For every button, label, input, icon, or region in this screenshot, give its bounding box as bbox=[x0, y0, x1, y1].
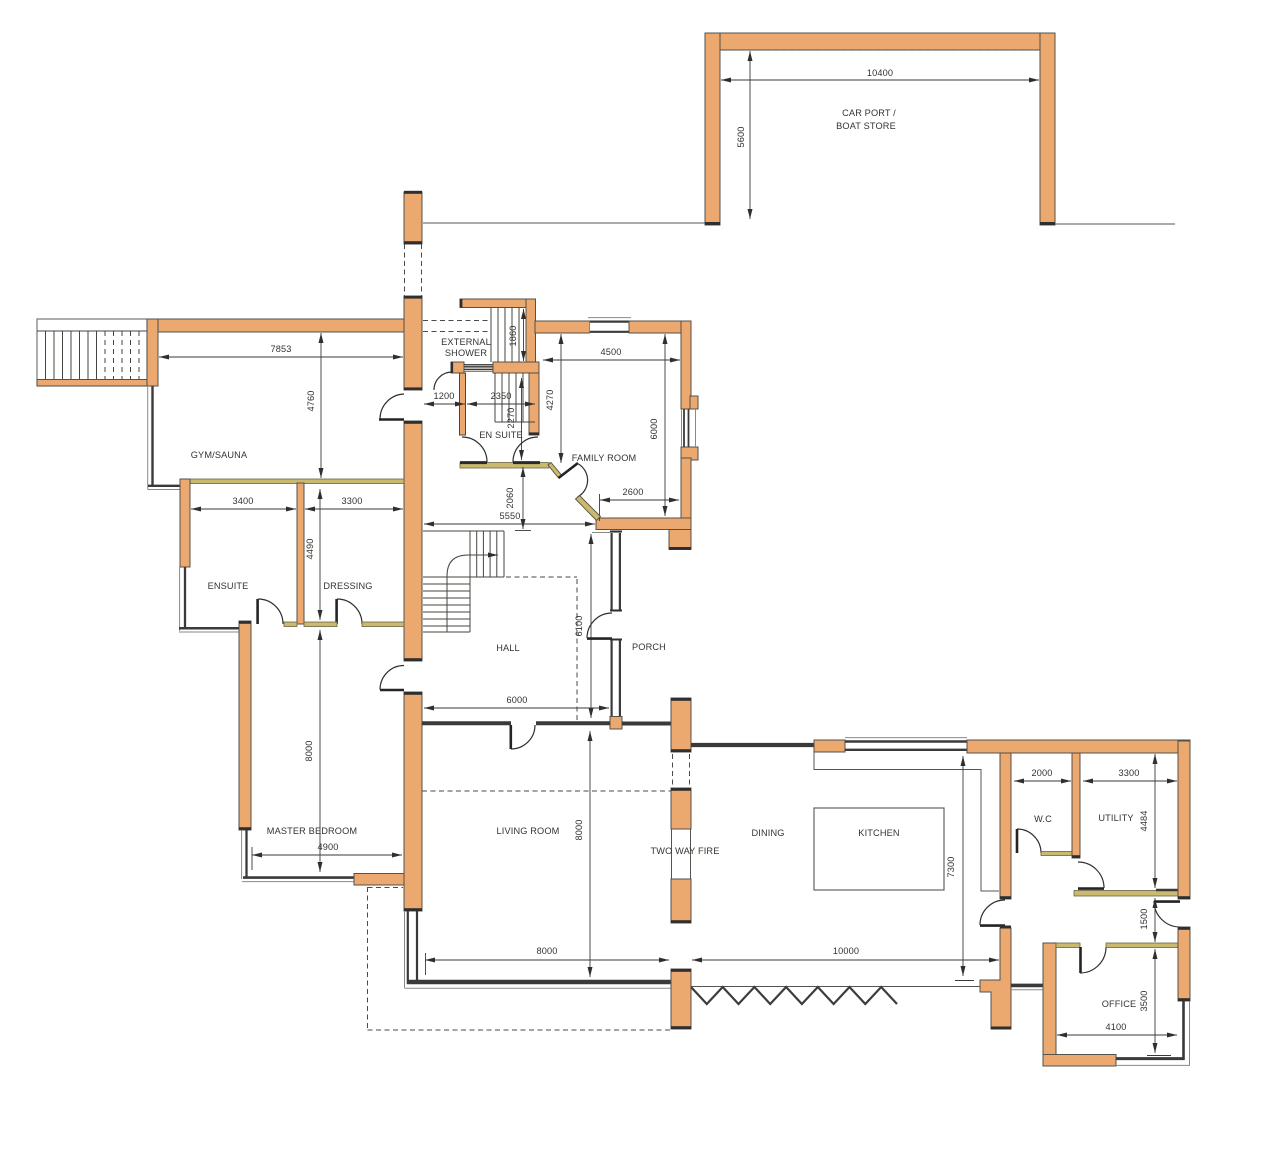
svg-text:4484: 4484 bbox=[1139, 810, 1149, 831]
svg-text:ENSUITE: ENSUITE bbox=[208, 581, 249, 591]
svg-text:4100: 4100 bbox=[1105, 1022, 1126, 1032]
svg-text:GYM/SAUNA: GYM/SAUNA bbox=[191, 450, 248, 460]
svg-text:6100: 6100 bbox=[574, 615, 584, 636]
svg-text:1860: 1860 bbox=[508, 325, 518, 346]
svg-text:2270: 2270 bbox=[506, 407, 516, 428]
svg-text:10400: 10400 bbox=[867, 68, 893, 78]
svg-text:LIVING ROOM: LIVING ROOM bbox=[497, 826, 560, 836]
svg-text:5550: 5550 bbox=[499, 511, 520, 521]
svg-text:4500: 4500 bbox=[600, 347, 621, 357]
svg-text:3300: 3300 bbox=[1118, 768, 1139, 778]
svg-text:MASTER BEDROOM: MASTER BEDROOM bbox=[267, 826, 357, 836]
svg-text:UTILITY: UTILITY bbox=[1098, 813, 1133, 823]
svg-text:5600: 5600 bbox=[736, 126, 746, 147]
svg-text:W.C: W.C bbox=[1034, 814, 1052, 824]
svg-text:3400: 3400 bbox=[232, 496, 253, 506]
svg-text:6000: 6000 bbox=[649, 418, 659, 439]
svg-text:SHOWER: SHOWER bbox=[445, 348, 487, 358]
svg-text:4900: 4900 bbox=[317, 842, 338, 852]
svg-text:CAR PORT /: CAR PORT / bbox=[842, 108, 896, 118]
svg-text:10000: 10000 bbox=[833, 946, 859, 956]
svg-text:3300: 3300 bbox=[341, 496, 362, 506]
svg-text:2000: 2000 bbox=[1031, 768, 1052, 778]
svg-text:8000: 8000 bbox=[574, 819, 584, 840]
svg-text:4490: 4490 bbox=[305, 538, 315, 559]
svg-text:7300: 7300 bbox=[946, 856, 956, 877]
svg-text:FAMILY ROOM: FAMILY ROOM bbox=[572, 453, 637, 463]
svg-text:HALL: HALL bbox=[496, 643, 520, 653]
svg-text:KITCHEN: KITCHEN bbox=[858, 828, 899, 838]
svg-text:PORCH: PORCH bbox=[632, 642, 666, 652]
svg-text:EN SUITE: EN SUITE bbox=[479, 430, 523, 440]
svg-text:3500: 3500 bbox=[1139, 990, 1149, 1011]
svg-text:4760: 4760 bbox=[306, 390, 316, 411]
svg-text:DINING: DINING bbox=[751, 828, 784, 838]
svg-text:DRESSING: DRESSING bbox=[323, 581, 372, 591]
svg-text:8000: 8000 bbox=[536, 946, 557, 956]
svg-text:EXTERNAL: EXTERNAL bbox=[441, 337, 491, 347]
svg-text:BOAT STORE: BOAT STORE bbox=[836, 121, 896, 131]
svg-text:1200: 1200 bbox=[433, 391, 454, 401]
svg-text:1500: 1500 bbox=[1139, 908, 1149, 929]
svg-text:OFFICE: OFFICE bbox=[1102, 999, 1137, 1009]
svg-text:6000: 6000 bbox=[506, 695, 527, 705]
svg-text:7853: 7853 bbox=[270, 344, 291, 354]
svg-text:TWO WAY FIRE: TWO WAY FIRE bbox=[651, 846, 720, 856]
svg-text:8000: 8000 bbox=[304, 740, 314, 761]
svg-text:2600: 2600 bbox=[622, 487, 643, 497]
svg-text:2350: 2350 bbox=[490, 391, 511, 401]
svg-text:4270: 4270 bbox=[545, 389, 555, 410]
svg-text:2060: 2060 bbox=[505, 487, 515, 508]
